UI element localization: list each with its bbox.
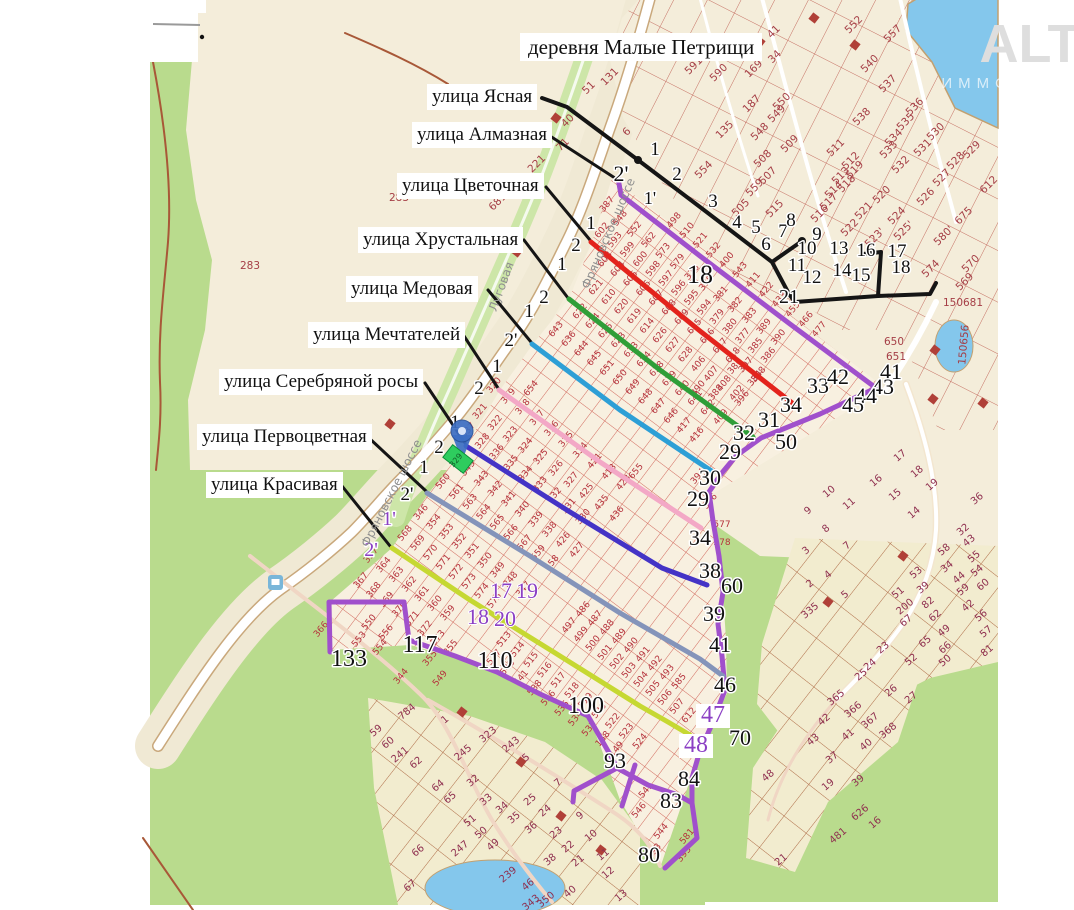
- annotation-number: 133: [331, 646, 367, 672]
- house-number-yasnaya: 6: [761, 234, 771, 255]
- street-label-almaznaya: улица Алмазная: [412, 122, 552, 148]
- street-label-khrustalnaya: улица Хрустальная: [358, 227, 523, 253]
- house-number-yasnaya: 5: [751, 217, 761, 238]
- annotation-number-violet: 19: [516, 578, 538, 603]
- annotation-number-violet: 18: [467, 604, 489, 629]
- house-number-yasnaya: 13: [830, 238, 849, 259]
- annotation-number-violet: 48: [684, 732, 708, 758]
- house-number-medovaya: 1: [524, 301, 534, 322]
- street-label-tsvetochnaya: улица Цветочная: [397, 173, 544, 199]
- annotation-number: 45: [842, 392, 864, 417]
- annotation-number: 70: [729, 725, 751, 750]
- annotation-number: 117: [402, 632, 437, 658]
- plot-number: 650: [884, 336, 904, 348]
- watermark-subtext: ИММОБ: [941, 75, 1028, 92]
- annotation-number: 42: [827, 364, 849, 389]
- annotation-number: 18: [687, 260, 713, 289]
- house-number-mechtateley: 2: [474, 378, 484, 399]
- annotation-number: 29: [687, 486, 709, 511]
- annotation-number: 34: [689, 525, 711, 550]
- annotation-number-violet: 47: [701, 702, 725, 728]
- house-number-yasnaya: 2: [672, 164, 682, 185]
- house-number-khrustalnaya: 1: [557, 254, 567, 275]
- house-number-medovaya: 2': [505, 330, 518, 351]
- annotation-number: 29: [719, 439, 741, 464]
- annotation-number: 21: [779, 286, 799, 308]
- bus-stop-glyph: [272, 579, 280, 585]
- corner-mark: [153, 24, 200, 25]
- house-number-pervotsvetnaya: 1: [419, 457, 429, 478]
- street-label-yasnaya: улица Ясная: [427, 84, 537, 110]
- annotation-number: 83: [660, 788, 682, 813]
- map-screenshot: 4985105215324005434114224334554664775485…: [0, 0, 1074, 910]
- street-label-krasivaya: улица Красивая: [206, 472, 343, 498]
- street-label-pervotsvetnaya: улица Первоцветная: [197, 424, 372, 450]
- street-label-medovaya: улица Медовая: [346, 276, 478, 302]
- plot-number: 150681: [943, 297, 983, 309]
- house-number-mechtateley: 1: [492, 356, 502, 377]
- bottom-margin: [705, 902, 998, 910]
- annotation-number: 34: [780, 392, 802, 417]
- village-title: деревня Малые Петрищи: [520, 33, 762, 61]
- house-number-khrustalnaya: 2: [539, 287, 549, 308]
- street-label-mechtateley: улица Мечтателей: [308, 322, 465, 348]
- house-number-yasnaya: 12: [803, 267, 822, 288]
- house-number-yasnaya: 8: [786, 210, 796, 231]
- street-node: [634, 156, 642, 164]
- annotation-number: 110: [477, 648, 512, 674]
- house-number-tsvetochnaya: 2: [571, 235, 581, 256]
- annotation-number: 50: [775, 429, 797, 454]
- house-number-yasnaya: 1: [650, 139, 660, 160]
- house-number-tsvetochnaya: 1: [586, 213, 596, 234]
- annotation-number: 60: [721, 573, 743, 598]
- house-number-yasnaya: 4: [732, 212, 742, 233]
- annotation-number: 80: [638, 842, 660, 867]
- annotation-number: 38: [699, 558, 721, 583]
- corner-dot: [200, 35, 204, 39]
- house-number-yasnaya: 15: [852, 265, 871, 286]
- annotation-number: 39: [703, 601, 725, 626]
- house-number-yasnaya: 14: [833, 260, 853, 281]
- watermark-text: ALT: [980, 14, 1074, 74]
- annotation-number: 33: [807, 373, 829, 398]
- annotation-number: 93: [604, 748, 626, 773]
- annotation-number-violet: 20: [494, 606, 516, 631]
- house-number-yasnaya: 3: [708, 191, 718, 212]
- plot-number: 283: [240, 260, 260, 272]
- house-number-pervotsvetnaya: 2': [401, 484, 414, 505]
- annotation-number: 46: [714, 672, 736, 697]
- annotation-number: 100: [568, 693, 604, 719]
- house-number-almaznaya: 1': [644, 188, 656, 208]
- street-label-serebryanoy-rosy: улица Серебряной росы: [219, 369, 423, 395]
- house-number-serebryanoy-rosy: 2: [434, 437, 444, 458]
- annotation-number: 41: [709, 632, 731, 657]
- house-number-yasnaya: 18: [892, 257, 911, 278]
- blank-corner-strip: [150, 0, 206, 13]
- annotation-number-violet: 17: [490, 578, 512, 603]
- house-number-yasnaya: 16: [857, 240, 876, 261]
